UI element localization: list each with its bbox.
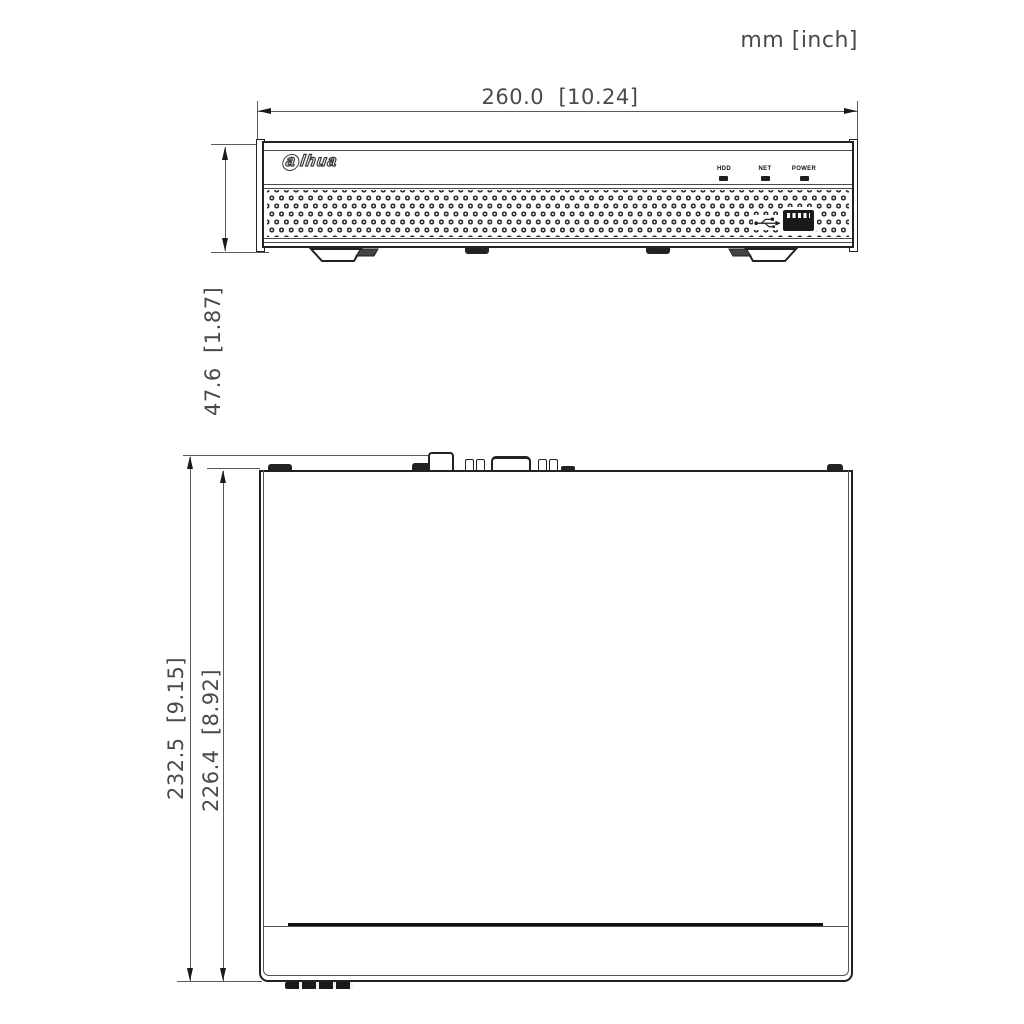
dim-arrow-down (220, 968, 226, 981)
top-chassis (259, 470, 853, 982)
device-foot-right (728, 248, 798, 264)
units-label: mm [inch] (718, 28, 858, 53)
extension-line (177, 981, 262, 982)
panel-top-seam (264, 150, 852, 151)
dahua-logo: alhua (280, 153, 338, 177)
dim-label-front-width: 260.0 [10.24] (400, 85, 720, 109)
top-chassis-inner-edge (263, 470, 849, 976)
dim-arrow-down (222, 238, 228, 251)
logo-text: lhua (299, 153, 338, 170)
foot-tab-center-right (646, 247, 670, 254)
led-net-indicator (761, 176, 770, 181)
panel-groove-top (264, 184, 852, 185)
dim-arrow-up (187, 456, 193, 469)
extension-line (207, 468, 260, 469)
front-panel: alhua HDD NET POWER (262, 141, 854, 248)
dim-arrow-up (220, 470, 226, 483)
extension-line (257, 101, 258, 140)
dim-label-top-depth-outer: 232.5 [9.15] (164, 640, 188, 800)
foot-tab-center-left (465, 247, 489, 254)
led-net-label: NET (743, 166, 787, 172)
usb-port (783, 210, 814, 231)
dimension-line (258, 111, 857, 112)
rear-connector-vga (491, 456, 531, 471)
dim-arrow-up (222, 147, 228, 160)
dim-label-front-height: 47.6 [1.87] (201, 268, 225, 416)
front-bezel-line (288, 923, 823, 926)
dim-arrow-left (258, 108, 271, 114)
led-hdd-indicator (719, 176, 728, 181)
front-edge-rubber-strip (285, 982, 353, 989)
dimension-line (190, 457, 191, 981)
logo-ring-letter: a (281, 154, 300, 171)
led-hdd-label: HDD (702, 166, 746, 172)
panel-bottom-seam-1 (264, 238, 852, 239)
rear-connector-power (428, 452, 454, 471)
device-foot-left (309, 248, 379, 264)
usb-port-pins (787, 213, 810, 218)
extension-line (183, 455, 428, 456)
dimension-line (223, 471, 224, 981)
extension-line (211, 252, 269, 253)
dimension-line (225, 147, 226, 251)
led-power-label: POWER (782, 166, 826, 172)
panel-bottom-seam-2 (264, 242, 852, 243)
panel-groove-bottom (264, 188, 852, 189)
extension-line (857, 101, 858, 140)
led-power-indicator (800, 176, 809, 181)
technical-drawing-canvas: mm [inch] 260.0 [10.24] 47.6 [1.87] (0, 0, 1024, 1024)
dim-arrow-right (844, 108, 857, 114)
dim-label-top-depth-inner: 226.4 [8.92] (199, 652, 223, 812)
front-bezel-seam (263, 926, 849, 927)
dim-arrow-down (187, 968, 193, 981)
usb-icon (753, 215, 781, 230)
